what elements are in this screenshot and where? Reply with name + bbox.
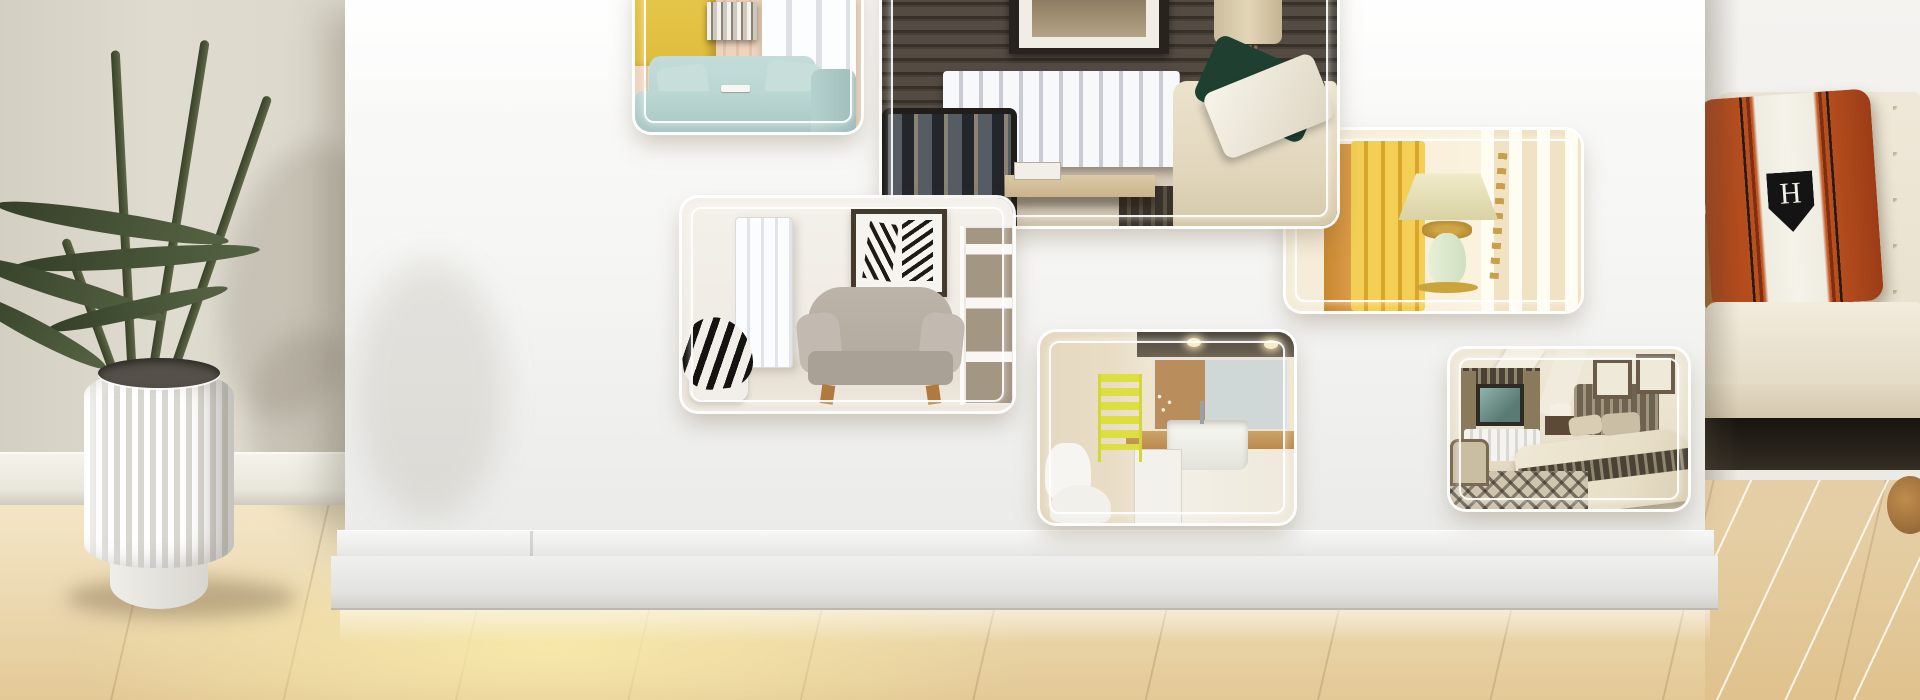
magazines: [1014, 162, 1062, 180]
towel-radiator-rail: [1098, 374, 1101, 462]
ceiling-spotlight: [1264, 340, 1278, 349]
open-book: [721, 85, 750, 93]
photo-card-armchair-room[interactable]: [682, 198, 1013, 411]
chair-leg: [820, 385, 836, 406]
yellow-vertical-radiator: [1351, 141, 1425, 311]
photo-card-mint-living-room[interactable]: [635, 0, 861, 132]
stripe-art-frame: [851, 209, 947, 298]
nightstand-lamp: [1550, 403, 1571, 416]
armchair-seat: [808, 351, 954, 385]
panel-ledge: [337, 530, 1714, 559]
bedroom-armchair: [1450, 439, 1489, 487]
mint-sofa-arm: [811, 69, 856, 132]
right-sofa-scene: H: [1705, 0, 1920, 700]
planter-opening: [98, 358, 220, 388]
lamp-ceramic-base: [1428, 233, 1466, 284]
wood-stool: [1887, 476, 1920, 534]
wall-frame: [1636, 354, 1675, 394]
fluted-planter-pot: [84, 368, 234, 568]
shelf-box-books: [707, 2, 757, 40]
yellow-towel-radiator: [1098, 374, 1141, 450]
pillow-shield-emblem: H: [1766, 170, 1816, 233]
ceiling-spotlight: [1187, 338, 1201, 347]
photo-card-bathroom[interactable]: [1040, 332, 1294, 523]
ladder-shelf: [960, 226, 1013, 405]
wall-frame: [1593, 359, 1632, 399]
photo-card-bedroom[interactable]: [1450, 349, 1688, 509]
tv-screen: [1480, 388, 1520, 421]
scene-banner: H: [0, 0, 1920, 700]
pillow-monogram-letter: H: [1778, 171, 1803, 216]
panel-plinth: [331, 556, 1718, 610]
photo-card-dark-living-room[interactable]: [882, 0, 1337, 226]
wall-art-frame: [1009, 0, 1168, 54]
chair-leg: [926, 385, 942, 406]
stripe-art-block: [902, 220, 933, 281]
art-photo: [1032, 0, 1147, 37]
panel-cast-shadow: [1705, 0, 1739, 480]
faucet: [1200, 401, 1204, 424]
towel-radiator-rail: [1139, 374, 1142, 462]
ledge-seam: [530, 531, 533, 559]
stripe-art-block: [862, 221, 899, 281]
lamp-gold-foot: [1416, 282, 1478, 293]
flowers: [1152, 389, 1177, 427]
window-frame: [1476, 384, 1524, 426]
leaf-shadow-on-panel: [355, 260, 505, 520]
plinth-floor-reflection: [340, 609, 1710, 643]
